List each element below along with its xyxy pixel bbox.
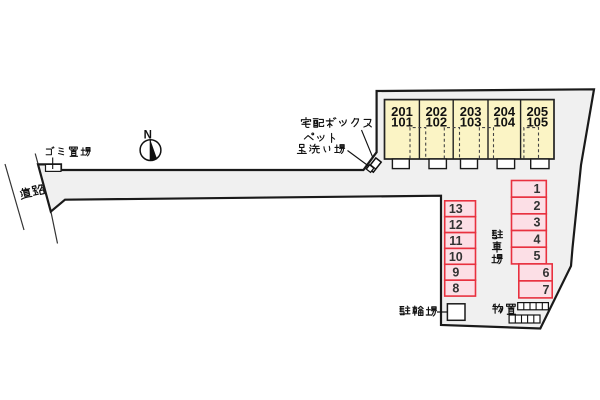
svg-text:8: 8 <box>452 282 459 296</box>
svg-text:4: 4 <box>534 232 541 246</box>
svg-text:1: 1 <box>534 182 541 196</box>
svg-text:7: 7 <box>543 283 550 297</box>
svg-text:104: 104 <box>493 114 515 129</box>
svg-text:9: 9 <box>452 266 459 280</box>
svg-text:102: 102 <box>425 114 447 129</box>
svg-text:105: 105 <box>526 114 548 129</box>
svg-text:6: 6 <box>543 266 550 280</box>
svg-text:10: 10 <box>449 250 463 264</box>
svg-text:12: 12 <box>449 218 463 232</box>
svg-text:13: 13 <box>449 202 463 216</box>
svg-text:103: 103 <box>460 114 482 129</box>
svg-text:101: 101 <box>391 114 413 129</box>
svg-text:3: 3 <box>534 216 541 230</box>
svg-text:11: 11 <box>449 234 462 248</box>
svg-text:N: N <box>144 130 152 142</box>
svg-text:2: 2 <box>534 199 541 213</box>
svg-text:5: 5 <box>534 249 541 263</box>
